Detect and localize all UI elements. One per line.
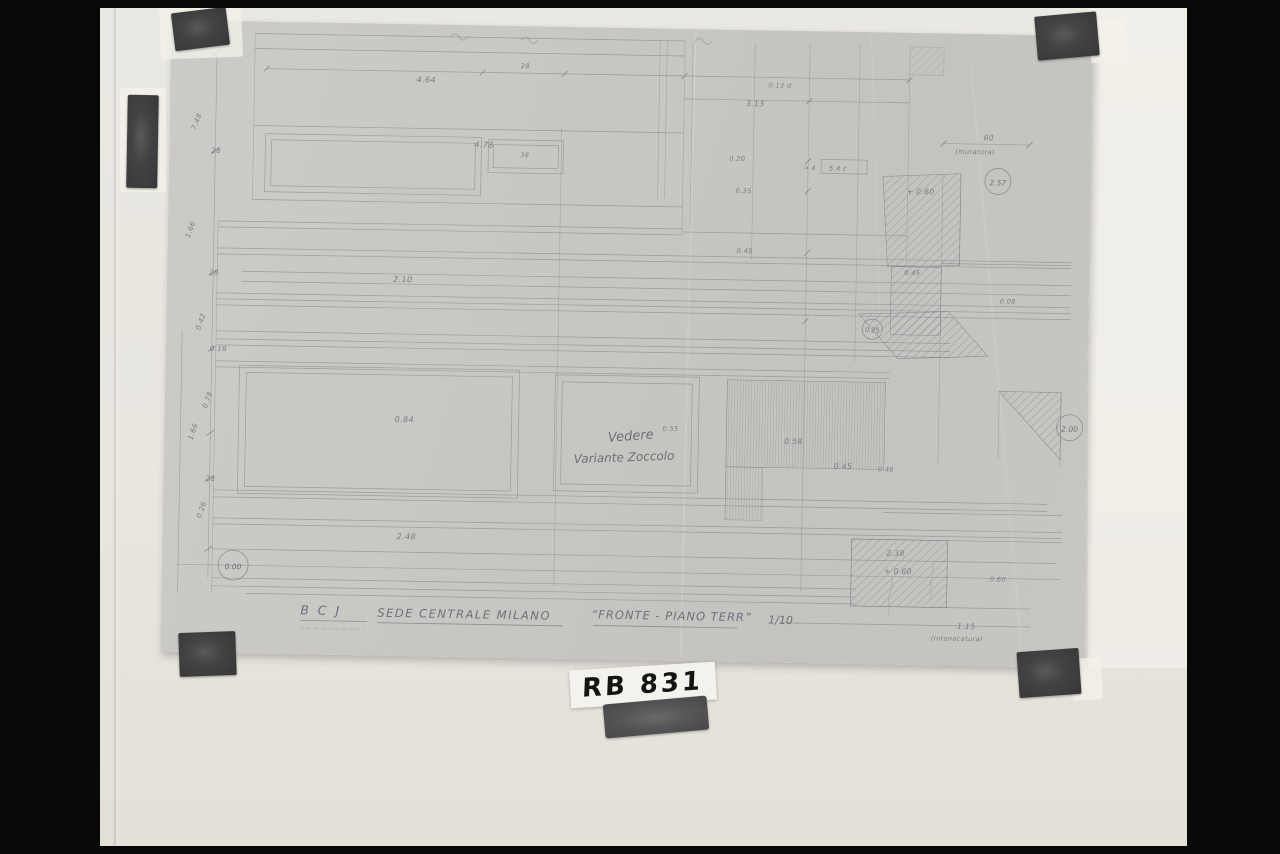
dimension-label: 0.78: [201, 390, 214, 409]
dimension-label: 0.18: [210, 345, 227, 353]
photo-paper: 0.00 2.57 0.25 2.00 Vedere Variante Zocc…: [100, 8, 1187, 846]
tape-dark-left-middle: [126, 95, 159, 189]
handwritten-note-line2: Variante Zoccolo: [574, 449, 675, 467]
dimension-label: 28: [521, 62, 530, 70]
tape-dark-top-left: [171, 8, 230, 51]
photograph-of-drawing: 0.00 2.57 0.25 2.00 Vedere Variante Zocc…: [0, 0, 1280, 854]
tape-dark-top-right: [1034, 11, 1100, 60]
dimension-label: 0.26: [195, 500, 208, 519]
dimension-label: 1.66: [184, 220, 197, 239]
paper-highlight: [1088, 8, 1187, 668]
dimension-label: → 4: [803, 164, 816, 172]
datum-mid-right: 0.25: [865, 326, 880, 334]
title-subject: SEDE CENTRALE MILANO: [377, 606, 551, 623]
dimension-label: 0.58: [784, 437, 802, 446]
title-scale: 1/10: [768, 614, 793, 627]
datum-upper-right: 2.57: [989, 178, 1006, 187]
dimension-label: 0.42: [194, 312, 207, 331]
dimension-label: 2.10: [393, 275, 413, 284]
dimension-label: 0.45: [904, 269, 920, 277]
dimension-label: 1.66: [187, 422, 200, 441]
hatched-masonry: [850, 46, 1067, 610]
dimension-label: (muratura): [955, 148, 995, 157]
datum-edge-right: 2.00: [1061, 425, 1078, 434]
dimension-label: 0.60: [990, 575, 1006, 583]
dimension-label: 0.08: [1000, 298, 1016, 306]
dimension-label: 0.46: [878, 465, 894, 473]
dimension-label: 0.55: [662, 425, 678, 433]
dimension-label: 0.84: [395, 415, 415, 424]
datum-baseline: 0.00: [225, 562, 242, 571]
dimension-label: 1.15: [957, 622, 975, 631]
dimension-label: 2.38: [886, 549, 904, 558]
dimension-label: 7.48: [190, 112, 204, 131]
dimension-label: 3.13: [746, 99, 764, 108]
dimension-label: + 0.60: [907, 187, 935, 196]
dimension-label: 4.64: [417, 75, 437, 84]
dimension-label: 28: [211, 147, 221, 155]
paper-crease: [113, 8, 118, 846]
tape-dark-bottom-right: [1016, 648, 1081, 698]
dimension-label: 0.45: [737, 247, 753, 255]
tape-dark-bottom-left: [178, 631, 237, 677]
film-border-right: [1185, 0, 1280, 854]
dimension-label: 2.48: [397, 532, 417, 541]
dimension-label: 0.45: [834, 462, 852, 471]
dimension-label: 28: [209, 269, 219, 277]
dimension-label: + 0.60: [884, 567, 912, 576]
handwritten-note-line1: Vedere: [608, 428, 655, 446]
title-view: “FRONTE - PIANO TERR”: [591, 607, 752, 624]
dimension-label: 0.13 d: [768, 81, 792, 89]
dimension-label: 5.4 c: [829, 165, 847, 173]
dimension-label: 60: [984, 133, 994, 142]
tracing-paper-sheet: 0.00 2.57 0.25 2.00 Vedere Variante Zocc…: [161, 20, 1094, 668]
dimension-label: (intonacatura): [931, 634, 983, 643]
dimension-label: 28: [206, 475, 216, 483]
dimension-label: 0.20: [729, 155, 745, 163]
dimension-label: 38: [520, 151, 529, 159]
title-initials: B C J: [300, 602, 342, 618]
dimension-label: 4.78: [474, 140, 494, 149]
title-block: B C J SEDE CENTRALE MILANO “FRONTE - PIA…: [300, 602, 793, 637]
dimension-label: 0.35: [736, 187, 752, 195]
film-border-left: [0, 0, 100, 854]
architectural-drawing: 0.00 2.57 0.25 2.00 Vedere Variante Zocc…: [161, 20, 1094, 668]
film-border-bottom: [0, 845, 1280, 854]
